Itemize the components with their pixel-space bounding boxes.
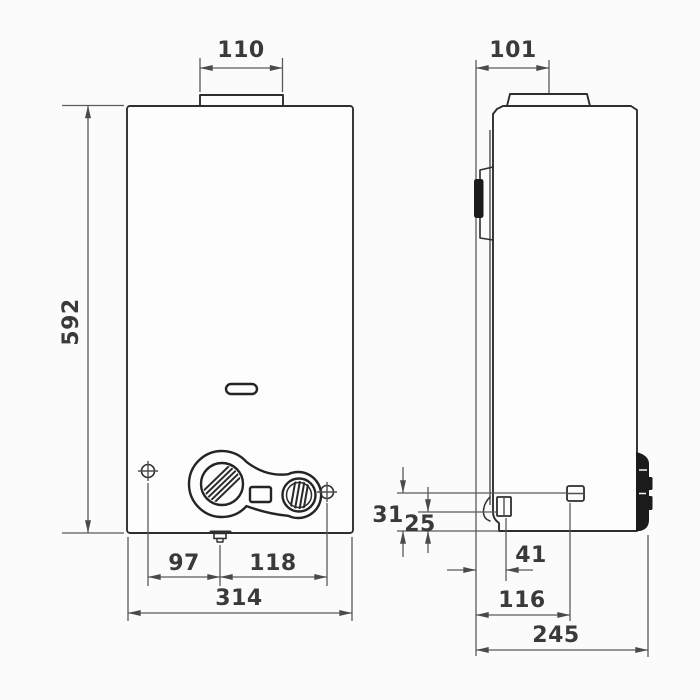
dim-label-592: 592 bbox=[59, 298, 84, 345]
dim-label-314: 314 bbox=[215, 586, 262, 611]
side-body bbox=[493, 106, 637, 531]
side-flue-collar bbox=[507, 94, 590, 106]
dim-front-flue-width: 110 bbox=[200, 38, 283, 92]
dim-label-41: 41 bbox=[515, 543, 547, 568]
dim-label-97: 97 bbox=[168, 551, 200, 576]
dim-side-flue-offset: 101 bbox=[476, 38, 549, 93]
dim-label-110: 110 bbox=[217, 38, 264, 63]
side-view bbox=[474, 60, 653, 656]
water-valve bbox=[567, 486, 584, 501]
front-view bbox=[127, 95, 353, 542]
dim-label-116: 116 bbox=[498, 588, 545, 613]
dim-label-25: 25 bbox=[404, 512, 436, 537]
dim-side-lower-offset: 25 bbox=[404, 487, 497, 553]
front-flue-collar bbox=[200, 95, 283, 106]
drawing-canvas: 110 592 97 118 314 bbox=[0, 0, 700, 700]
dim-label-101: 101 bbox=[489, 38, 536, 63]
dim-label-31: 31 bbox=[372, 503, 404, 528]
bottom-hook bbox=[483, 497, 490, 521]
left-knob bbox=[201, 463, 244, 505]
front-bottom-connection bbox=[211, 532, 230, 542]
gas-inlet bbox=[497, 497, 511, 516]
panel-rect bbox=[250, 487, 271, 502]
side-control-protrusion bbox=[636, 452, 653, 531]
wall-bracket bbox=[474, 179, 484, 218]
dim-front-width: 314 bbox=[128, 537, 352, 621]
dim-label-245: 245 bbox=[532, 623, 579, 648]
dim-front-height: 592 bbox=[59, 106, 124, 534]
technical-drawing: 110 592 97 118 314 bbox=[0, 0, 700, 700]
right-knob bbox=[283, 478, 316, 512]
dim-label-118: 118 bbox=[249, 551, 296, 576]
front-window-slot bbox=[226, 384, 257, 394]
